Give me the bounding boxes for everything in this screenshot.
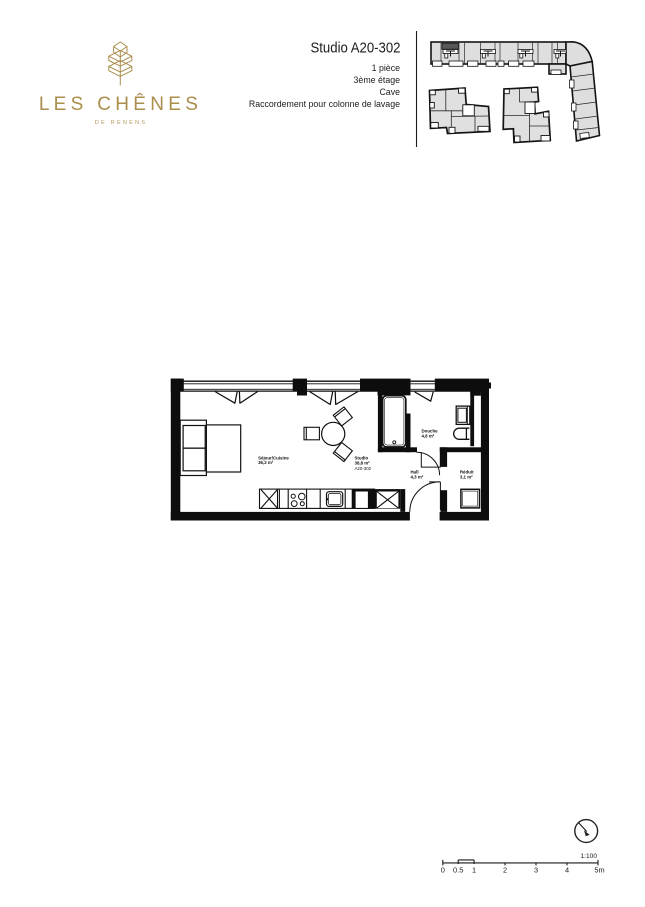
svg-text:LES CHÊNES: LES CHÊNES bbox=[39, 93, 202, 115]
svg-text:1 pièce: 1 pièce bbox=[372, 63, 400, 73]
svg-text:4: 4 bbox=[565, 866, 569, 875]
svg-text:36,2 m²: 36,2 m² bbox=[258, 460, 274, 465]
svg-text:38,8 m²: 38,8 m² bbox=[355, 461, 371, 466]
svg-text:3,1 m²: 3,1 m² bbox=[460, 475, 473, 480]
svg-text:3: 3 bbox=[534, 866, 538, 875]
svg-text:Cave: Cave bbox=[379, 87, 400, 97]
svg-text:0: 0 bbox=[441, 866, 445, 875]
svg-text:Studio A20-302: Studio A20-302 bbox=[311, 40, 401, 57]
svg-text:5m: 5m bbox=[594, 866, 604, 875]
svg-text:3ème étage: 3ème étage bbox=[354, 75, 401, 85]
svg-text:4,3 m²: 4,3 m² bbox=[411, 475, 424, 480]
svg-text:Raccordement pour colonne de l: Raccordement pour colonne de lavage bbox=[249, 99, 400, 109]
svg-text:A20-302: A20-302 bbox=[355, 466, 372, 471]
svg-text:2: 2 bbox=[503, 866, 507, 875]
svg-text:4,8 m²: 4,8 m² bbox=[422, 434, 435, 439]
svg-text:1: 1 bbox=[472, 866, 476, 875]
svg-text:1:100: 1:100 bbox=[580, 853, 597, 860]
svg-text:DE RENENS: DE RENENS bbox=[95, 120, 147, 126]
svg-text:0.5: 0.5 bbox=[453, 866, 463, 875]
